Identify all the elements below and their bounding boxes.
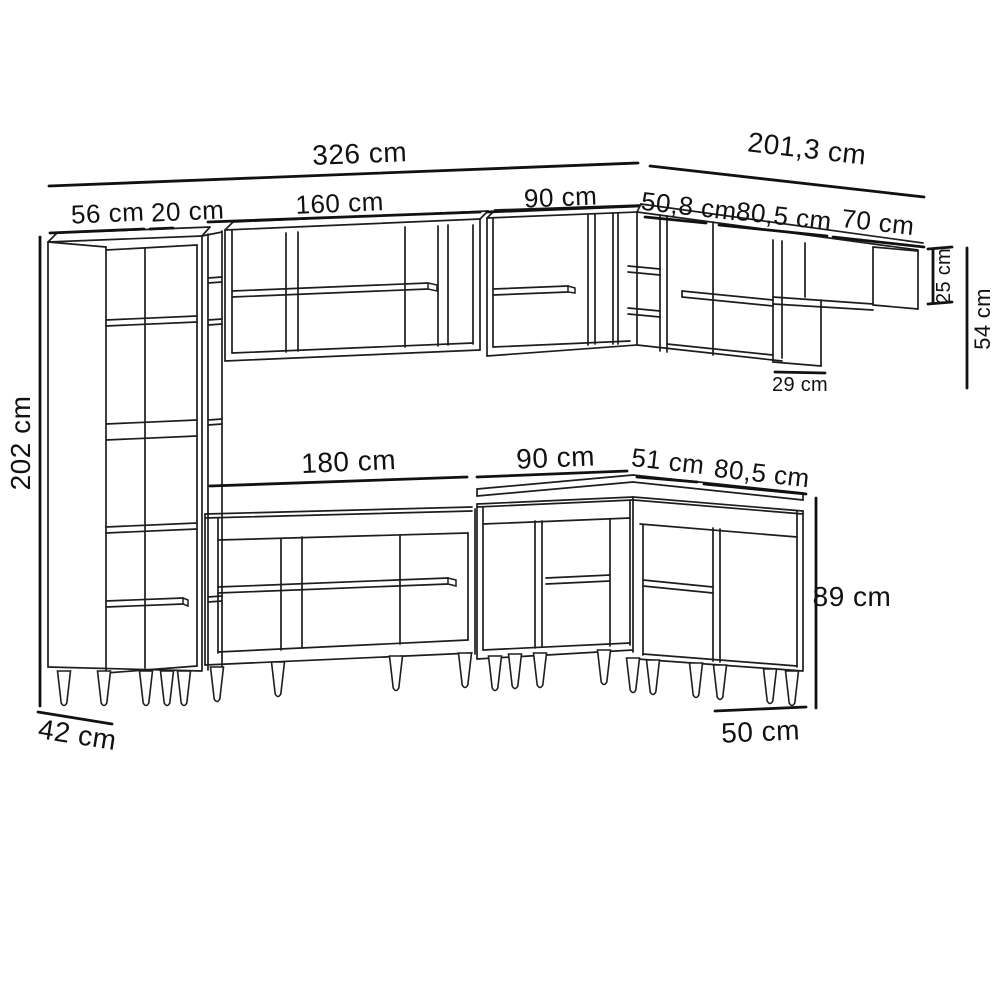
shelf-end-cap bbox=[568, 286, 575, 293]
dim-filler-width: 20 cm bbox=[150, 194, 225, 227]
cabinet-line bbox=[208, 424, 222, 425]
dim-total-width: 326 cm bbox=[312, 136, 408, 171]
dim-wall-section-height: 54 cm bbox=[970, 288, 995, 349]
cabinet-line bbox=[208, 277, 222, 278]
cabinet-line bbox=[208, 596, 222, 597]
shelf-end-cap bbox=[448, 578, 456, 586]
dim-tall-cabinet-width: 56 cm bbox=[70, 196, 145, 229]
dim-base-cabinet-depth: 50 cm bbox=[721, 714, 801, 748]
dim-wall-shelf-height: 25 cm bbox=[933, 248, 955, 304]
cabinet-line bbox=[208, 282, 222, 283]
dim-tall-cabinet-height: 202 cm bbox=[5, 396, 36, 491]
diagram-canvas: 326 cm 201,3 cm 56 cm 20 cm 160 cm 90 cm… bbox=[0, 0, 1000, 1000]
dim-wall-cabinet-large-width: 160 cm bbox=[295, 186, 384, 220]
dim-wall-lower-box-depth: 29 cm bbox=[772, 374, 828, 396]
shelf-end-cap bbox=[428, 283, 437, 291]
kitchen-dimension-diagram: 326 cm 201,3 cm 56 cm 20 cm 160 cm 90 cm… bbox=[0, 0, 1000, 1000]
cabinet-line bbox=[208, 319, 222, 320]
dim-base-cabinet-height: 89 cm bbox=[813, 581, 892, 612]
dimension-line bbox=[775, 372, 825, 373]
dim-base-cabinet-large-width: 180 cm bbox=[301, 444, 397, 479]
dimension-line bbox=[150, 228, 173, 229]
cabinet-line bbox=[208, 324, 222, 325]
shelf-end-cap bbox=[183, 598, 188, 606]
cabinet-line bbox=[208, 601, 222, 602]
dim-wall-cabinet-small-width: 90 cm bbox=[523, 180, 598, 213]
dim-corner-base-cabinet-width: 90 cm bbox=[516, 440, 596, 474]
cabinet-line bbox=[208, 419, 222, 420]
